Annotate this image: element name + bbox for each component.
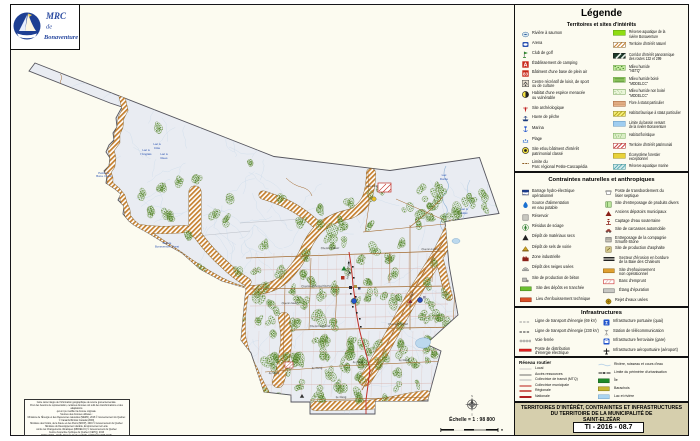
svg-text:4e Rang: 4e Rang — [269, 371, 280, 375]
svg-text:83: 83 — [523, 71, 529, 76]
svg-text:Côte: Côte — [154, 146, 161, 150]
svg-text:de: de — [46, 24, 52, 31]
svg-text:Darbo: Darbo — [440, 177, 449, 181]
svg-text:Chemin Principal Ouest: Chemin Principal Ouest — [301, 284, 331, 289]
svg-text:l'Anglais: l'Anglais — [140, 152, 152, 156]
svg-text:Chemin Martin: Chemin Martin — [282, 301, 299, 305]
svg-text:MRC: MRC — [45, 11, 67, 21]
svg-text:4e Rang: 4e Rang — [353, 360, 364, 364]
svg-text:5e Rang: 5e Rang — [336, 395, 347, 399]
svg-text:Chemin Forest: Chemin Forest — [421, 247, 438, 251]
svg-text:Bonaventure: Bonaventure — [43, 34, 78, 41]
svg-text:Bonaventure Ouest: Bonaventure Ouest — [155, 245, 179, 249]
svg-text:Lieu d'enf.: Lieu d'enf. — [366, 184, 378, 188]
svg-text:Chemin Morziat: Chemin Morziat — [388, 322, 408, 326]
svg-text:4e Rang: 4e Rang — [399, 358, 410, 362]
svg-text:Rees: Rees — [160, 156, 168, 160]
svg-text:Bona. Ouest: Bona. Ouest — [96, 174, 112, 178]
svg-text:S: S — [471, 413, 473, 417]
svg-text:Juliet: Juliet — [460, 211, 467, 215]
svg-text:A: A — [524, 62, 528, 67]
svg-text:Chemin Morzéat: Chemin Morzéat — [310, 324, 331, 328]
svg-text:4e Rang: 4e Rang — [312, 366, 323, 370]
svg-text:N: N — [471, 394, 473, 398]
svg-text:Chemin Fraser: Chemin Fraser — [321, 246, 340, 250]
